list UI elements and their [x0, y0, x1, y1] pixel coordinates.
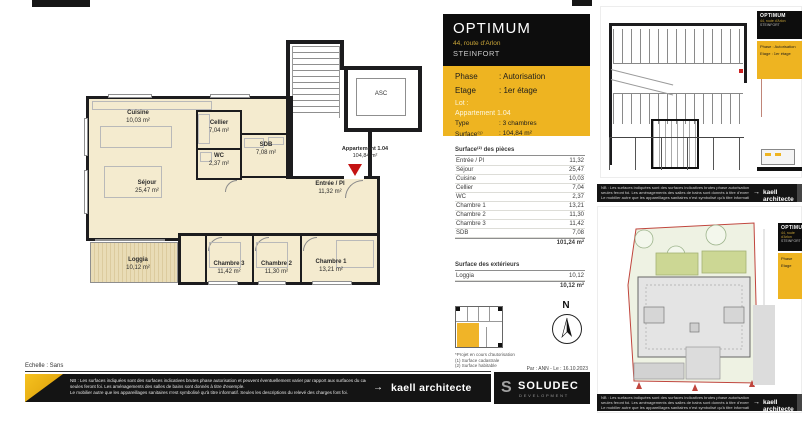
arrow-icon: → [373, 382, 383, 393]
room-label-sejour: Séjour25,47 m² [118, 180, 176, 195]
compass-rose-icon [552, 314, 582, 344]
table-row: SDB7,08 [455, 229, 585, 238]
arrow-icon: → [753, 189, 760, 196]
window [84, 118, 88, 156]
table-row: Cuisine10,03 [455, 175, 585, 184]
stair-treads [292, 46, 340, 118]
room-label-sdb: SDB7,08 m² [240, 142, 292, 157]
rooms-surface-table: Surface⁽²⁾ des pièces Entrée / Pl11,32 S… [455, 146, 585, 247]
cellar-partitions [609, 137, 744, 170]
key-plan [455, 306, 503, 348]
elevation-sketch [757, 147, 802, 173]
table-row: Chambre 211,30 [455, 211, 585, 220]
sliding-door [95, 239, 165, 241]
developer-logo-block: S SOLUDEC DEVELOPMENT [494, 372, 590, 404]
wall-segment [196, 148, 242, 150]
wall-segment [290, 96, 293, 179]
wall-segment [240, 176, 292, 178]
footer-yellow-wedge [25, 374, 63, 402]
soludec-sub: DEVELOPMENT [519, 393, 569, 398]
table-row: Séjour25,47 [455, 166, 585, 175]
room-label-chambre2: Chambre 211,30 m² [253, 261, 300, 276]
key-plan-highlight [457, 323, 479, 347]
lot-value: Appartement 1.04 [455, 110, 590, 117]
furniture-outline [100, 126, 172, 148]
wall-segment [288, 40, 344, 44]
wall-segment [178, 233, 380, 236]
scale-label: Echelle : Sans [25, 363, 63, 369]
room-label-entree: Entrée / Pl11,32 m² [300, 181, 360, 196]
window [208, 281, 238, 285]
wall-segment [286, 40, 290, 179]
lot-label: Lot : [455, 100, 590, 107]
ramp-line [611, 69, 673, 85]
title-block-info: Phase: Autorisation Etage: 1er étage Lot… [443, 66, 590, 136]
room-label-chambre1: Chambre 113,21 m² [302, 259, 360, 274]
document-viewer: ASC Appartement 1.04 104,84 m² Cuisine10… [0, 0, 802, 421]
page-thumbnail-basement[interactable]: OPTIMUM 44, route d'Arlon STEINFORT Phas… [600, 6, 802, 178]
thumb-title-block-header: OPTIMUM 44, route d'Arlon STEINFORT [778, 223, 802, 251]
table-row: Chambre 113,21 [455, 202, 585, 211]
room-label-wc: WC2,37 m² [196, 153, 242, 168]
thumb-title-block-info: Phase : Autorisation Etage : 1er étage [757, 41, 802, 79]
wall-segment [344, 66, 422, 70]
main-plan-page: ASC Appartement 1.04 104,84 m² Cuisine10… [0, 0, 595, 421]
wall-segment [196, 110, 242, 112]
window [108, 94, 152, 98]
room-label-loggia: Loggia10,12 m² [112, 257, 164, 272]
wall-segment [178, 236, 181, 285]
wall-segment [292, 176, 344, 179]
table-row: Entrée / Pl11,32 [455, 157, 585, 166]
table-row: WC2,37 [455, 193, 585, 202]
wall-segment [377, 176, 380, 285]
thumb-footer-text: NB : Les surfaces indiquées sont des sur… [601, 186, 749, 200]
thumb-footer-bar: NB : Les surfaces indiquées sont des sur… [597, 394, 802, 411]
thumb-title-block-header: OPTIMUM 44, route d'Arlon STEINFORT [757, 11, 802, 39]
compass: N [546, 300, 586, 350]
room-label-cellier: Cellier7,04 m² [196, 120, 242, 135]
exterior-surface-table: Surface des extérieurs Loggia10,12 10,12… [455, 262, 585, 290]
window [312, 281, 352, 285]
table-total: 101,24 m² [455, 238, 585, 247]
table-row: Cellier7,04 [455, 184, 585, 193]
title-block-header: OPTIMUM 44, route d'Arlon STEINFORT [443, 14, 590, 66]
gray-panel [753, 305, 775, 385]
footer-nb-text: NB : Les surfaces indiquées sont des sur… [70, 378, 366, 396]
red-marker [739, 69, 743, 73]
logo-sliver [797, 394, 802, 411]
entrance-marker-icon [348, 164, 362, 176]
room-label-cuisine: Cuisine10,03 m² [112, 110, 164, 125]
page-thumbnail-siteplan[interactable]: OPTIMUM 44, route d'Arlon STEINFORT Phas… [597, 206, 802, 413]
table-row: Chambre 311,42 [455, 220, 585, 229]
room-label-chambre3: Chambre 311,42 m² [206, 261, 252, 276]
elevator-label: ASC [356, 91, 406, 97]
project-address: 44, route d'Arlon [453, 40, 580, 47]
wall-segment [364, 176, 380, 179]
table-row: Loggia10,12 [455, 272, 585, 281]
architect-logo: kaell architecte [391, 382, 472, 394]
wall-segment [418, 66, 422, 132]
footer-divider [25, 371, 491, 372]
apartment-label: Appartement 1.04 104,84 m² [330, 146, 400, 160]
thumb-title-block-info: Phase Etage [778, 253, 802, 299]
furniture-outline [92, 101, 212, 110]
arrow-icon: → [753, 399, 760, 406]
thumb-footer-text: NB : Les surfaces indiquées sont des sur… [601, 396, 749, 410]
wall-segment [744, 23, 747, 83]
soludec-wordmark: SOLUDEC [518, 380, 579, 392]
project-name: OPTIMUM [453, 20, 580, 37]
project-city: STEINFORT [453, 49, 580, 58]
wall-segment [609, 23, 747, 26]
window [258, 281, 286, 285]
wall-segment [344, 128, 422, 132]
footer-bar: NB : Les surfaces indiquées sont des sur… [25, 374, 491, 402]
wall-segment [240, 133, 292, 135]
wall-segment [344, 66, 348, 132]
elevator-cab [356, 78, 406, 116]
floor-plan: ASC Appartement 1.04 104,84 m² Cuisine10… [0, 0, 440, 330]
thumb-footer-bar: NB : Les surfaces indiquées sont des sur… [597, 184, 802, 202]
soludec-s-icon: S [501, 379, 512, 397]
table-total: 10,12 m² [455, 281, 585, 290]
window [210, 94, 250, 98]
parking-stalls [613, 29, 743, 64]
window [84, 170, 88, 214]
compass-n-label: N [546, 300, 586, 311]
logo-sliver [797, 184, 802, 202]
